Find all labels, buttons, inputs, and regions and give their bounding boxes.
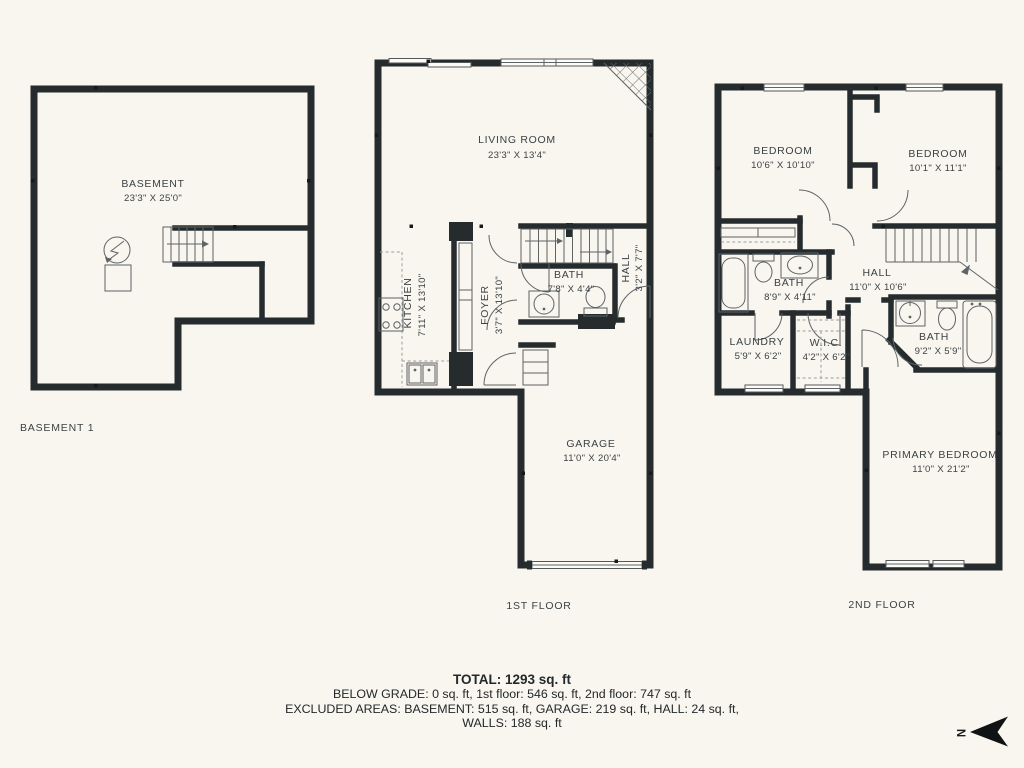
room-label-bath-left: BATH	[774, 277, 804, 289]
room-dims-wic: 4'2" X 6'2"	[803, 352, 850, 363]
closet	[721, 228, 795, 242]
room-dims-basement: 23'3" X 25'0"	[124, 193, 182, 204]
room-label-basement: BASEMENT	[121, 178, 184, 190]
floor-label-second: 2ND FLOOR	[848, 599, 915, 611]
bathtub-icon	[719, 254, 748, 312]
room-dims-bath-left: 8'9" X 4'11"	[764, 292, 816, 303]
wic-shelving	[797, 320, 845, 382]
room-label-foyer: FOYER	[479, 285, 491, 325]
sink-icon	[781, 253, 818, 278]
room-label-kitchen: KITCHEN	[402, 278, 414, 329]
room-label-bath-1f: BATH	[554, 269, 584, 281]
first-floor-plan: LIVING ROOM 23'3" X 13'4" KITCHEN 7'11" …	[375, 59, 653, 613]
basement-plan: BASEMENT 23'3" X 25'0" BASEMENT 1	[20, 86, 311, 434]
room-dims-bedroom-right: 10'1" X 11'1"	[909, 163, 966, 174]
water-heater-icon	[105, 265, 131, 291]
summary-walls: WALLS: 188 sq. ft	[0, 716, 1024, 731]
room-label-hall-1f: HALL	[620, 253, 632, 282]
second-floor-stairs-icon	[886, 229, 998, 291]
room-dims-laundry: 5'9" X 6'2"	[735, 351, 782, 362]
entry-steps-icon	[523, 350, 548, 385]
room-dims-bedroom-left: 10'6" X 10'10"	[751, 160, 815, 171]
area-summary: TOTAL: 1293 sq. ft BELOW GRADE: 0 sq. ft…	[0, 672, 1024, 731]
room-dims-kitchen: 7'11" X 13'10"	[417, 273, 428, 336]
room-label-bath-right: BATH	[919, 331, 949, 343]
room-dims-living-room: 23'3" X 13'4"	[488, 150, 546, 161]
garage-door	[527, 561, 647, 570]
bathtub-icon	[963, 301, 996, 368]
electrical-panel-icon	[104, 237, 130, 263]
room-label-bedroom-right: BEDROOM	[908, 148, 967, 160]
floorplan-page: BASEMENT 23'3" X 25'0" BASEMENT 1	[0, 0, 1024, 768]
room-dims-hall-1f: 3'2" X 7'7"	[634, 245, 645, 292]
room-dims-hall-2f: 11'0" X 10'6"	[849, 282, 906, 293]
summary-below-grade: BELOW GRADE: 0 sq. ft, 1st floor: 546 sq…	[0, 687, 1024, 702]
toilet-icon	[937, 301, 957, 330]
room-dims-foyer: 3'7" X 13'10"	[494, 276, 505, 334]
room-label-bedroom-left: BEDROOM	[753, 145, 812, 157]
room-label-primary-bedroom: PRIMARY BEDROOM	[882, 449, 997, 461]
sink-icon	[896, 301, 925, 326]
room-dims-bath-1f: 7'8" X 4'4"	[548, 284, 595, 295]
room-label-wic: W.I.C.	[810, 337, 843, 349]
summary-total: TOTAL: 1293 sq. ft	[0, 672, 1024, 687]
room-dims-primary-bedroom: 11'0" X 21'2"	[912, 464, 969, 475]
toilet-icon	[753, 254, 774, 282]
kitchen-sink-icon	[407, 363, 437, 385]
floorplan-canvas: BASEMENT 23'3" X 25'0" BASEMENT 1	[0, 0, 1024, 768]
floor-label-basement: BASEMENT 1	[20, 422, 94, 434]
crosshatch-stairwell	[604, 63, 651, 110]
room-label-living-room: LIVING ROOM	[478, 134, 556, 146]
basement-walls	[34, 89, 311, 387]
stove-icon	[379, 298, 403, 331]
summary-excluded-areas: EXCLUDED AREAS: BASEMENT: 515 sq. ft, GA…	[0, 702, 1024, 717]
floor-label-first: 1ST FLOOR	[506, 600, 571, 612]
room-label-hall-2f: HALL	[862, 267, 891, 279]
room-label-laundry: LAUNDRY	[730, 336, 785, 348]
room-dims-bath-right: 9'2" X 5'9"	[915, 346, 962, 357]
room-dims-garage: 11'0" X 20'4"	[563, 453, 620, 464]
second-floor-plan: BEDROOM 10'6" X 10'10" BEDROOM 10'1" X 1…	[717, 84, 1001, 611]
room-label-garage: GARAGE	[566, 438, 615, 450]
basement-stairs-icon	[163, 227, 213, 262]
